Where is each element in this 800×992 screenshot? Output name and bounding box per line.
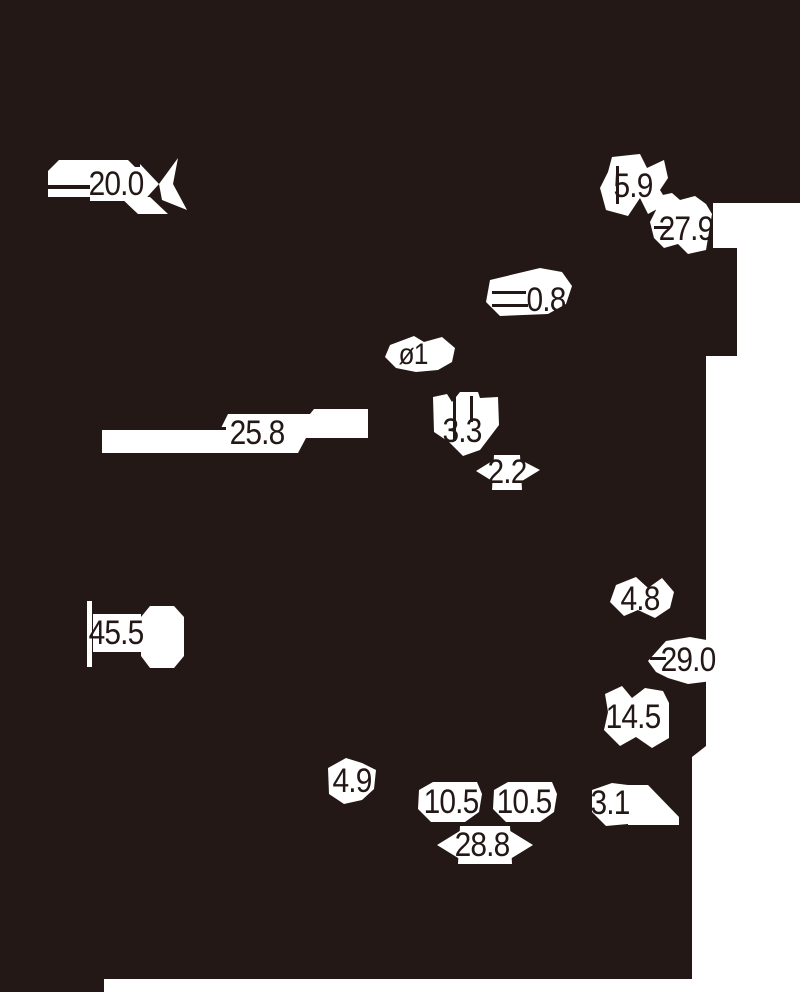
dim-label-29-0: 29.0: [661, 643, 716, 677]
dim-label-10-5-a: 10.5: [424, 785, 479, 819]
dim-label-4-8: 4.8: [621, 582, 660, 616]
arrow-star-20-0: [159, 158, 187, 210]
dim-label-2-2: 2.2: [488, 455, 527, 489]
dim-wedge-3-1: [628, 785, 679, 825]
dim-label-4-9: 4.9: [333, 764, 372, 798]
leader-line-25-8: [196, 427, 226, 430]
dim-label-5-9: 5.9: [614, 169, 653, 203]
dim-label-14-5: 14.5: [606, 700, 661, 734]
dim-label-28-8: 28.8: [455, 828, 510, 862]
dim-label-45-5: 45.5: [89, 616, 144, 650]
leader-line-0-8-top: [492, 291, 526, 294]
dim-label-20-0: 20.0: [89, 167, 144, 201]
leader-line-0-8-bottom: [492, 304, 528, 307]
dim-label-3-3: 3.3: [443, 414, 482, 448]
page-margin-right-bottom: [104, 203, 800, 992]
dim-label-10-5-b: 10.5: [497, 785, 552, 819]
dim-label-dia-1: ø1: [398, 340, 427, 370]
dim-label-27-9: 27.9: [659, 212, 714, 246]
dimension-drawing: 20.0 5.9 27.9 0.8 ø1 3.3 2.2 25.8 4.8 29…: [0, 0, 800, 992]
dim-label-0-8: 0.8: [527, 283, 566, 317]
dim-label-25-8: 25.8: [230, 416, 285, 450]
dim-label-3-1: 3.1: [591, 786, 630, 820]
dim-octagon-45-5: [141, 606, 184, 668]
drawing-overlay: [0, 0, 800, 992]
